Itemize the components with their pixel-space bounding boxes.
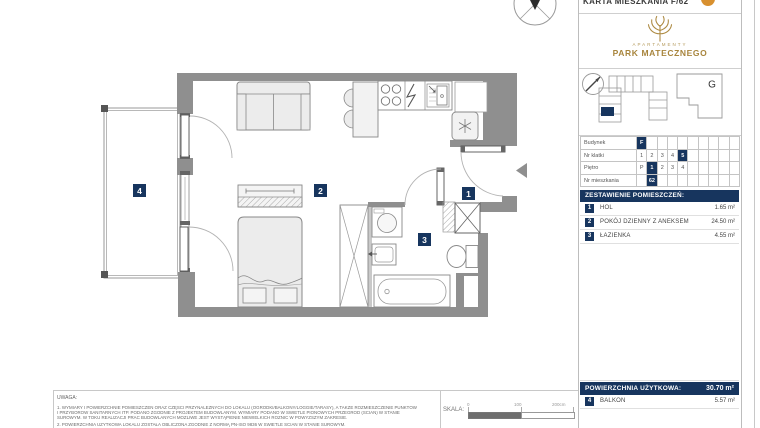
building-table-cell: 3: [658, 150, 668, 163]
building-table-cell: [688, 162, 698, 175]
building-table-cell: [730, 162, 740, 175]
footer-divider: [53, 390, 578, 391]
building-table-row: Nr klatki12345: [581, 150, 740, 163]
building-table-cell: 62: [647, 175, 657, 188]
logo-dot-icon: [701, 0, 715, 6]
building-table-cell: [699, 162, 709, 175]
dresser: [238, 185, 302, 207]
entrance-arrow-icon: [516, 163, 527, 178]
document-title: KARTA MIESZKANIA F/62: [583, 0, 688, 6]
building-table-cell: [688, 137, 698, 150]
building-table-cell: 4: [678, 162, 688, 175]
building-table-cell: [678, 175, 688, 188]
building-table-label: Nr mieszkania: [581, 175, 637, 188]
scale-label: SKALA:: [443, 407, 464, 413]
room-area: 5.57 m²: [715, 395, 735, 408]
tree-logo-icon: [643, 14, 677, 42]
building-table-cell: [678, 137, 688, 150]
floor-plan: 1 2 3 4: [0, 0, 578, 428]
room-list-title: ZESTAWIENIE POMIESZCZEŃ:: [580, 190, 739, 202]
room-number-badge: 1: [585, 204, 594, 213]
building-table-cell: [719, 162, 729, 175]
svg-text:G: G: [708, 80, 716, 91]
room-number-badge: 4: [585, 397, 594, 406]
building-table-cell: 2: [658, 162, 668, 175]
room-number-badge: 2: [585, 218, 594, 227]
svg-text:2: 2: [318, 186, 323, 196]
building-table-cell: F: [637, 137, 647, 150]
building-table-cell: [647, 137, 657, 150]
balcony-door-top: [181, 115, 232, 158]
scale-bar-outline: [521, 412, 575, 419]
room-area: 1.65 m²: [715, 202, 735, 215]
usable-area-value: 30.70 m²: [706, 385, 734, 392]
building-table-label: Budynek: [581, 137, 637, 150]
building-table-cell: [709, 150, 719, 163]
scale-bar-filled: [468, 412, 523, 419]
building-g-plan: G: [677, 74, 722, 118]
room-area: 4.55 m²: [715, 230, 735, 243]
shaft: [455, 203, 480, 233]
brand-block: APARTAMENTY PARK MATECZNEGO: [579, 13, 741, 69]
site-keyplan: G: [579, 68, 741, 136]
footer-left-border: [53, 390, 54, 428]
washing-machine: [372, 207, 402, 237]
bathroom-door: [405, 168, 444, 205]
building-table-label: Piętro: [581, 162, 637, 175]
usable-area-bar: POWIERZCHNIA UŻYTKOWA: 30.70 m²: [580, 382, 739, 395]
bathroom-sink: [368, 244, 396, 265]
north-compass-icon: [514, 0, 556, 25]
note-line: SUROWYM. W TOKU REALIZACJI PRAC BUDOWLAN…: [57, 416, 435, 421]
building-table-cell: [658, 137, 668, 150]
note-line: 2. POWIERZCHNIA UŻYTKOWA LOKALU ZOSTAŁA …: [57, 423, 435, 428]
room-name: BALKON: [600, 395, 626, 408]
building-table-cell: [709, 175, 719, 188]
dining-table: [344, 82, 378, 137]
installation-chase: [443, 202, 455, 232]
building-table-cell: [719, 137, 729, 150]
highlighted-unit: [601, 107, 614, 116]
toilet: [447, 246, 478, 268]
keyplan-compass-icon: [583, 74, 604, 95]
wardrobe: [340, 205, 368, 307]
balcony-row: 4 BALKON 5.57 m²: [580, 395, 739, 409]
sofa: [237, 82, 310, 130]
apartment-card-sheet: 1 2 3 4 UWAGA: 1. WYMIARY I POWIERZCHNIE…: [0, 0, 760, 428]
room-name: ŁAZIENKA: [600, 230, 631, 243]
building-table-cell: [699, 137, 709, 150]
building-table-cell: [688, 150, 698, 163]
building-table-cell: [699, 150, 709, 163]
building-table-cell: [668, 175, 678, 188]
brand-subtitle: APARTAMENTY: [579, 42, 741, 47]
building-table-cell: [730, 175, 740, 188]
building-table-cell: P: [637, 162, 647, 175]
room-row: 2 POKÓJ DZIENNY Z ANEKSEM 24.50 m²: [580, 216, 739, 230]
room-number-badge: 3: [585, 232, 594, 241]
building-table-cell: 3: [668, 162, 678, 175]
building-table-cell: 1: [647, 162, 657, 175]
room-row: 3 ŁAZIENKA 4.55 m²: [580, 230, 739, 244]
building-table-cell: [658, 175, 668, 188]
building-table-cell: [730, 137, 740, 150]
building-table-cell: [730, 150, 740, 163]
building-table-row: BudynekF: [581, 137, 740, 150]
usable-area-summary: POWIERZCHNIA UŻYTKOWA: 30.70 m² 4 BALKON…: [580, 380, 739, 409]
room-label-balcony: 4: [133, 184, 146, 197]
building-table-label: Nr klatki: [581, 150, 637, 163]
room-label-living: 2: [314, 184, 327, 197]
svg-text:1: 1: [466, 189, 471, 199]
building-table-cell: [637, 175, 647, 188]
svg-text:4: 4: [137, 186, 142, 196]
notes-block: UWAGA: 1. WYMIARY I POWIERZCHNIE POMIESZ…: [57, 395, 435, 428]
scale-bar: SKALA: 0 100 200cm: [440, 396, 577, 428]
building-table-cell: [719, 150, 729, 163]
bed: [238, 217, 302, 307]
building-table-cell: 2: [647, 150, 657, 163]
building-table-cell: [699, 175, 709, 188]
kitchen-counter: [378, 81, 452, 110]
sheet-right-border: [754, 0, 755, 428]
corner-counter: [455, 82, 487, 112]
sidebar: KARTA MIESZKANIA F/62 APARTAMENTY PARK M…: [578, 0, 742, 428]
building-table-cell: 5: [678, 150, 688, 163]
svg-text:3: 3: [422, 235, 427, 245]
brand-title: PARK MATECZNEGO: [579, 48, 741, 58]
building-table-row: PiętroP1234: [581, 162, 740, 175]
building-table-cell: [709, 137, 719, 150]
building-table-row: Nr mieszkania62: [581, 175, 740, 188]
kitchen-sink-icon: [427, 84, 449, 107]
building-table-cell: 4: [668, 150, 678, 163]
building-table-cell: [668, 137, 678, 150]
fridge: [452, 112, 478, 140]
scale-tick-200: 200cm: [552, 402, 566, 407]
building-table: BudynekFNr klatki12345PiętroP1234Nr mies…: [580, 136, 740, 187]
building-table-cell: [709, 162, 719, 175]
room-label-hall: 1: [462, 187, 475, 200]
room-name: HOL: [600, 202, 613, 215]
building-table-cell: 1: [637, 150, 647, 163]
room-label-bathroom: 3: [418, 233, 431, 246]
room-list: ZESTAWIENIE POMIESZCZEŃ: 1 HOL 1.65 m² 2…: [580, 190, 739, 244]
room-area: 24.50 m²: [711, 216, 735, 229]
notes-title: UWAGA:: [57, 395, 435, 401]
building-table-cell: [719, 175, 729, 188]
sidebar-header: KARTA MIESZKANIA F/62: [579, 0, 741, 14]
bathtub: [374, 275, 450, 307]
balcony-door-bottom: [180, 227, 233, 271]
usable-area-label: POWIERZCHNIA UŻYTKOWA:: [585, 385, 681, 392]
building-table-cell: [688, 175, 698, 188]
room-name: POKÓJ DZIENNY Z ANEKSEM: [600, 216, 689, 229]
room-row: 1 HOL 1.65 m²: [580, 202, 739, 216]
